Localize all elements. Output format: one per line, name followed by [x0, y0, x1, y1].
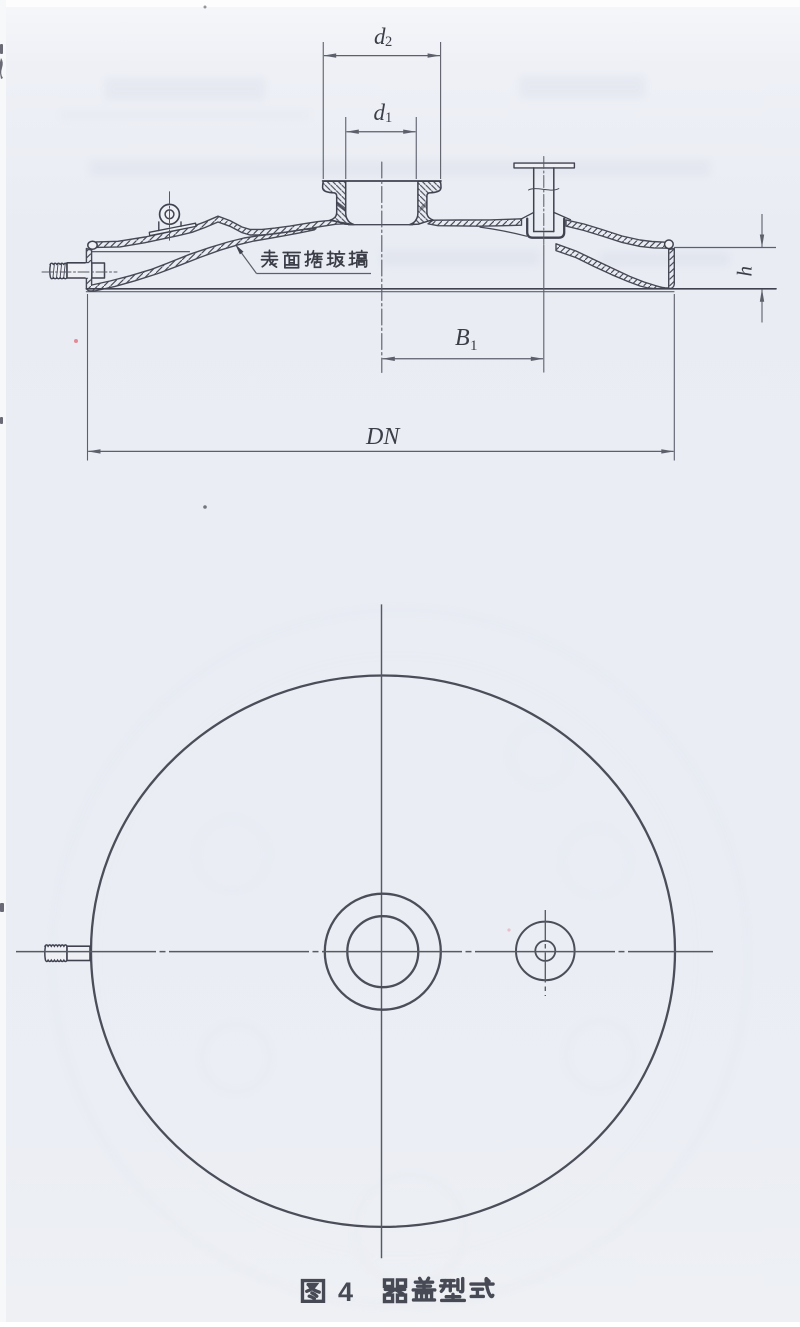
svg-text:2: 2: [385, 34, 392, 50]
svg-text:1: 1: [385, 110, 392, 126]
svg-text:DN: DN: [365, 424, 401, 450]
svg-text:1: 1: [470, 338, 478, 354]
svg-text:B: B: [455, 325, 470, 351]
svg-text:d: d: [374, 100, 386, 125]
svg-text:h: h: [733, 266, 757, 277]
svg-text:4: 4: [338, 1277, 353, 1307]
